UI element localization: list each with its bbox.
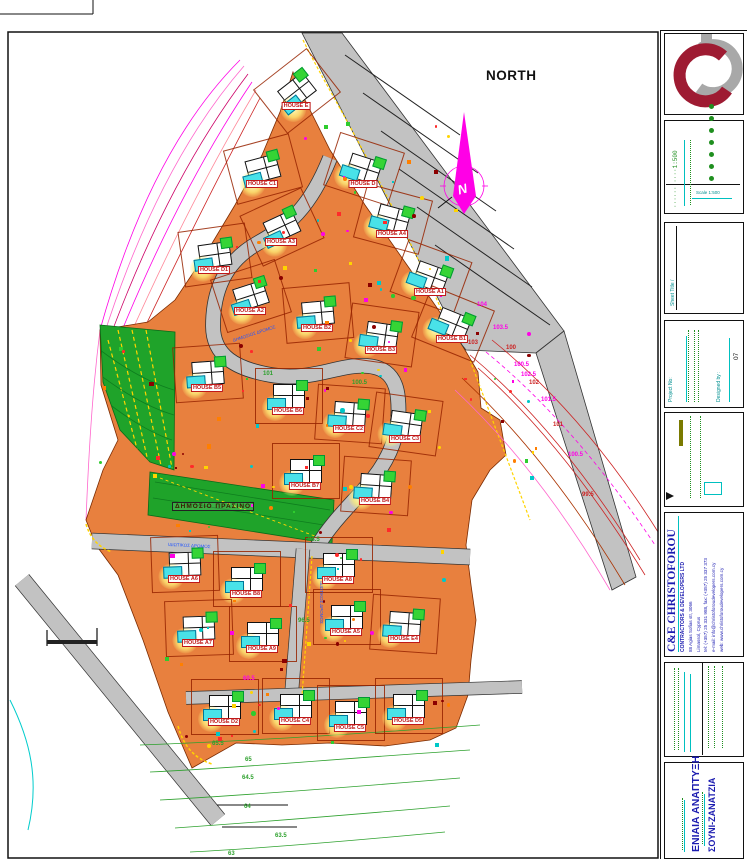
designed-by-label: Designed by : bbox=[716, 371, 722, 402]
divider-line bbox=[704, 794, 705, 846]
logo-dot bbox=[709, 128, 714, 133]
revision-cell bbox=[704, 482, 722, 495]
public-green-label: ΔΗΜΟΣΙΟ ΠΡΑΣΙΝΟ bbox=[172, 502, 254, 511]
divider-line bbox=[714, 666, 715, 748]
divider-line bbox=[690, 674, 691, 752]
company-address-1: 88 Agias Sofias str, 3066 bbox=[688, 516, 694, 652]
divider-line bbox=[674, 668, 675, 750]
project-name-line2: ΣΟΥΝΙ-ΖΑΝΑΤΖΙΑ bbox=[707, 732, 717, 852]
divider-line bbox=[686, 336, 687, 402]
divider-line bbox=[700, 416, 701, 498]
divider-line bbox=[690, 140, 691, 205]
logo-box bbox=[664, 33, 744, 115]
logo-dot bbox=[709, 152, 714, 157]
divider-line bbox=[698, 330, 699, 402]
cad-sheet: N HOUSE EHOUSE C1HOUSE DHOUSE A3HOUSE D1… bbox=[0, 0, 747, 859]
revision-bar bbox=[679, 420, 683, 446]
logo-dot bbox=[709, 140, 714, 145]
divider-line bbox=[684, 140, 685, 206]
divider-line bbox=[684, 672, 685, 752]
divider-line bbox=[722, 666, 723, 748]
divider-line bbox=[678, 668, 679, 750]
green-area-west bbox=[100, 325, 175, 470]
divider-line bbox=[690, 416, 691, 498]
divider-line bbox=[702, 792, 703, 844]
company-email: e-mail: info@christoforoudevelopers.com.… bbox=[711, 516, 717, 652]
scale-caption: Scale 1:500 bbox=[696, 190, 720, 195]
divider-line bbox=[684, 800, 685, 852]
divider-line bbox=[682, 798, 683, 850]
scale-value: 1:500 bbox=[672, 150, 679, 208]
stream-line bbox=[10, 700, 33, 830]
logo-dot bbox=[709, 116, 714, 121]
logo-dot bbox=[709, 176, 714, 181]
project-no-box bbox=[664, 320, 744, 408]
company-address-2: Limassol, Cyprus bbox=[696, 516, 702, 652]
project-no-label: Project No: bbox=[668, 377, 674, 402]
logo-dot bbox=[709, 104, 714, 109]
designed-by-value: 07 bbox=[733, 353, 740, 360]
site-plan-drawing: N bbox=[0, 0, 747, 859]
company-block: C&E CHRISTOFOROU CONTRACTORS & DEVELOPER… bbox=[666, 516, 725, 652]
divider-line bbox=[694, 330, 695, 402]
company-phone: tel: (+357) 25 331 988, fax: (+357) 25 3… bbox=[703, 516, 709, 652]
project-name-line1: ΕΝΙΑΙΑ ΑΝΑΠΤΥΞΗ bbox=[690, 732, 702, 852]
logo-dot bbox=[709, 164, 714, 169]
divider-line bbox=[729, 338, 730, 402]
divider-line bbox=[702, 662, 703, 755]
company-web: web: www.christoforoudevelopers.com.cy bbox=[719, 516, 725, 652]
divider-line bbox=[666, 184, 740, 185]
revision-arrow-icon bbox=[666, 492, 674, 500]
divider-line bbox=[708, 666, 709, 748]
company-subtitle: CONTRACTORS & DEVELOPERS LTD bbox=[680, 516, 686, 652]
company-logo bbox=[665, 34, 743, 114]
north-label: NORTH bbox=[486, 68, 537, 83]
company-name: C&E CHRISTOFOROU bbox=[666, 516, 679, 652]
divider-line bbox=[688, 330, 689, 402]
divider-line bbox=[692, 198, 732, 199]
divider-line bbox=[676, 226, 677, 310]
